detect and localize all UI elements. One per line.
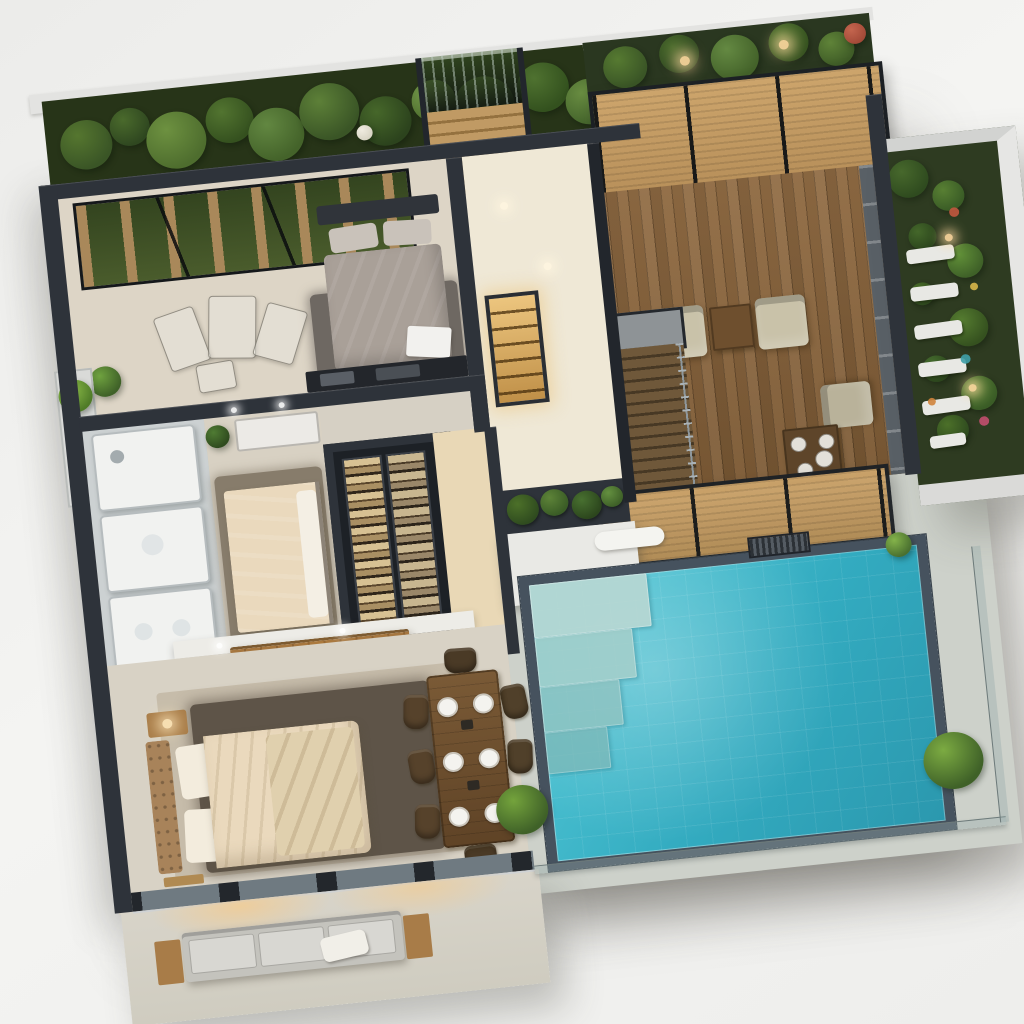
ceiling-light [543, 262, 552, 270]
ceiling-light [216, 643, 223, 649]
ceiling-light [278, 402, 285, 408]
floorplan-render [0, 0, 1024, 1024]
villa-plan [0, 0, 1024, 1024]
ceiling-light [679, 56, 690, 66]
ceiling-light [778, 39, 789, 49]
ceiling-light [968, 384, 977, 392]
ceiling-light [231, 407, 238, 413]
ceiling-light [339, 628, 346, 634]
ceiling-light [500, 202, 509, 210]
ceiling-light [944, 233, 953, 241]
light-layer [0, 0, 1024, 1024]
